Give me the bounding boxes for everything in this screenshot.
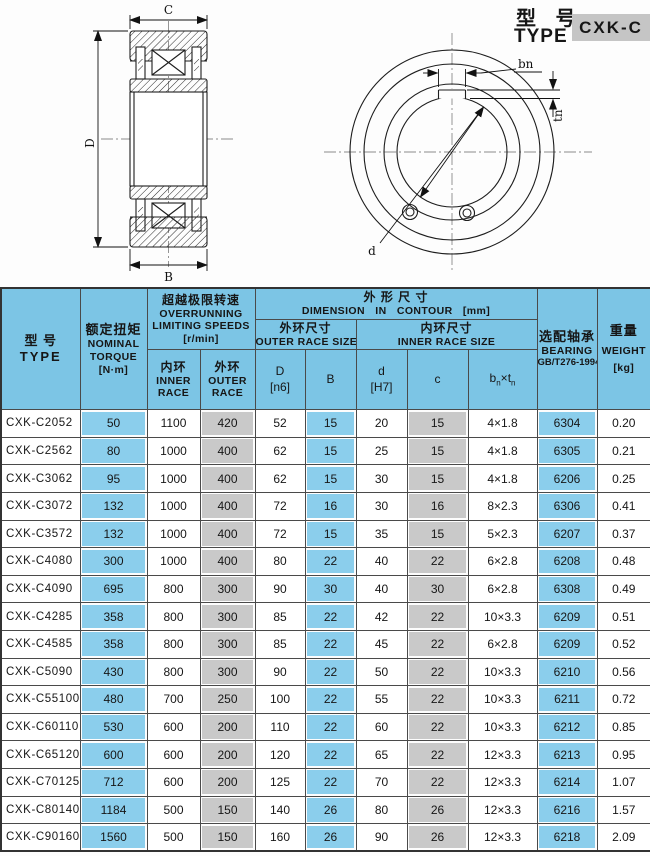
cell-bt: 10×3.3 <box>468 713 537 741</box>
cell-c: 15 <box>407 465 468 493</box>
cell-outer: 200 <box>200 713 255 741</box>
cell-bearing: 6216 <box>537 796 597 824</box>
cell-bt: 10×3.3 <box>468 686 537 714</box>
dimension-label-d: d <box>368 244 376 258</box>
cell-weight: 0.49 <box>597 575 650 603</box>
cell-outer: 300 <box>200 575 255 603</box>
col-header-type: 型 号 TYPE <box>1 288 80 410</box>
cell-B: 22 <box>305 686 356 714</box>
cell-c: 15 <box>407 410 468 438</box>
cell-D: 120 <box>255 741 305 769</box>
cell-outer: 250 <box>200 686 255 714</box>
cell-weight: 0.41 <box>597 492 650 520</box>
cell-bt: 4×1.8 <box>468 465 537 493</box>
cell-D: 72 <box>255 520 305 548</box>
cell-torque: 80 <box>80 437 147 465</box>
cell-outer: 200 <box>200 741 255 769</box>
dimension-tn: tn <box>467 71 565 122</box>
cell-inner: 800 <box>147 575 200 603</box>
cell-outer: 400 <box>200 465 255 493</box>
col-header-inner-race: 内环 INNER RACE <box>147 350 200 410</box>
cell-bearing: 6209 <box>537 630 597 658</box>
cell-bearing: 6218 <box>537 824 597 852</box>
cell-B: 22 <box>305 548 356 576</box>
table-row: CXK-C35721321000400721535155×2.362070.37 <box>1 520 650 548</box>
cell-d: 35 <box>356 520 407 548</box>
cell-d: 40 <box>356 575 407 603</box>
cell-outer: 300 <box>200 630 255 658</box>
cell-inner: 700 <box>147 686 200 714</box>
cell-D: 52 <box>255 410 305 438</box>
cell-D: 90 <box>255 658 305 686</box>
dimension-label-C: C <box>164 3 173 17</box>
cell-type: CXK-C2052 <box>1 410 80 438</box>
cell-inner: 1000 <box>147 465 200 493</box>
cell-type: CXK-C3062 <box>1 465 80 493</box>
type-badge: CXK-C <box>572 14 650 41</box>
cell-inner: 1000 <box>147 492 200 520</box>
front-view-drawing: bn tn d <box>320 27 620 277</box>
cell-d: 70 <box>356 768 407 796</box>
cell-type: CXK-C60110 <box>1 713 80 741</box>
cell-B: 26 <box>305 796 356 824</box>
page-title-en: TYPE <box>514 26 568 48</box>
table-row: CXK-C7012571260020012522702212×3.362141.… <box>1 768 650 796</box>
cell-c: 22 <box>407 713 468 741</box>
table-row: CXK-C6512060060020012022652212×3.362130.… <box>1 741 650 769</box>
cell-torque: 712 <box>80 768 147 796</box>
cell-c: 15 <box>407 437 468 465</box>
cell-weight: 0.95 <box>597 741 650 769</box>
cell-D: 125 <box>255 768 305 796</box>
table-row: CXK-C4090695800300903040306×2.863080.49 <box>1 575 650 603</box>
cell-torque: 695 <box>80 575 147 603</box>
table-row: CXK-C4585358800300852245226×2.862090.52 <box>1 630 650 658</box>
cell-c: 15 <box>407 520 468 548</box>
col-header-weight: 重量 WEIGHT [kg] <box>597 288 650 410</box>
cell-B: 22 <box>305 658 356 686</box>
cell-bearing: 6211 <box>537 686 597 714</box>
col-header-dimension: 外 形 尺 寸 DIMENSION IN CONTOUR [mm] <box>255 288 537 319</box>
cell-inner: 800 <box>147 630 200 658</box>
col-header-c: c <box>407 350 468 410</box>
cell-inner: 500 <box>147 796 200 824</box>
cell-torque: 1560 <box>80 824 147 852</box>
cell-c: 26 <box>407 824 468 852</box>
cell-bt: 10×3.3 <box>468 658 537 686</box>
cell-B: 16 <box>305 492 356 520</box>
cell-d: 65 <box>356 741 407 769</box>
cell-d: 42 <box>356 603 407 631</box>
col-header-inner-race-size: 内环尺寸 INNER RACE SIZE <box>356 319 537 350</box>
cell-weight: 0.56 <box>597 658 650 686</box>
cell-weight: 2.09 <box>597 824 650 852</box>
table-row: CXK-C90160156050015016026902612×3.362182… <box>1 824 650 852</box>
cell-bt: 6×2.8 <box>468 630 537 658</box>
cell-B: 22 <box>305 741 356 769</box>
cell-bearing: 6207 <box>537 520 597 548</box>
cell-B: 22 <box>305 603 356 631</box>
technical-drawing-area: C D B <box>0 0 650 287</box>
dimension-d: d <box>368 107 483 258</box>
cell-inner: 600 <box>147 768 200 796</box>
cell-c: 22 <box>407 686 468 714</box>
cell-inner: 600 <box>147 713 200 741</box>
cell-outer: 400 <box>200 437 255 465</box>
cell-D: 72 <box>255 492 305 520</box>
cell-bt: 6×2.8 <box>468 548 537 576</box>
cell-d: 20 <box>356 410 407 438</box>
cell-outer: 300 <box>200 658 255 686</box>
cell-bt: 4×1.8 <box>468 410 537 438</box>
cell-D: 85 <box>255 630 305 658</box>
cell-weight: 0.20 <box>597 410 650 438</box>
cell-torque: 430 <box>80 658 147 686</box>
table-row: CXK-C80140118450015014026802612×3.362161… <box>1 796 650 824</box>
col-header-outer-race: 外环 OUTER RACE <box>200 350 255 410</box>
cell-torque: 132 <box>80 492 147 520</box>
cell-weight: 0.48 <box>597 548 650 576</box>
cell-bearing: 6306 <box>537 492 597 520</box>
cell-D: 110 <box>255 713 305 741</box>
cell-c: 22 <box>407 658 468 686</box>
table-body: CXK-C2052501100420521520154×1.863040.20C… <box>1 410 650 852</box>
cell-c: 22 <box>407 741 468 769</box>
cell-torque: 300 <box>80 548 147 576</box>
cell-outer: 150 <box>200 796 255 824</box>
cell-type: CXK-C4585 <box>1 630 80 658</box>
cell-torque: 530 <box>80 713 147 741</box>
cell-bearing: 6213 <box>537 741 597 769</box>
bearing-section <box>130 31 207 247</box>
cell-weight: 1.07 <box>597 768 650 796</box>
cell-outer: 400 <box>200 520 255 548</box>
col-header-overrunning: 超越极限转速 OVERRUNNING LIMITING SPEEDS [r/mi… <box>147 288 255 350</box>
cell-c: 26 <box>407 796 468 824</box>
cell-torque: 358 <box>80 603 147 631</box>
cell-D: 140 <box>255 796 305 824</box>
cell-type: CXK-C70125 <box>1 768 80 796</box>
cell-d: 30 <box>356 492 407 520</box>
cell-torque: 95 <box>80 465 147 493</box>
cell-inner: 1000 <box>147 520 200 548</box>
cell-B: 15 <box>305 520 356 548</box>
cell-D: 80 <box>255 548 305 576</box>
cell-outer: 400 <box>200 492 255 520</box>
cell-B: 15 <box>305 465 356 493</box>
cell-torque: 1184 <box>80 796 147 824</box>
cell-bearing: 6304 <box>537 410 597 438</box>
cell-outer: 400 <box>200 548 255 576</box>
cell-B: 22 <box>305 768 356 796</box>
dimension-label-D: D <box>85 138 97 148</box>
col-header-bt: bn×tn <box>468 350 537 410</box>
cell-type: CXK-C2562 <box>1 437 80 465</box>
cell-bearing: 6208 <box>537 548 597 576</box>
dimension-label-B: B <box>164 270 173 284</box>
cell-bt: 6×2.8 <box>468 575 537 603</box>
table-row: CXK-C6011053060020011022602210×3.362120.… <box>1 713 650 741</box>
cell-d: 25 <box>356 437 407 465</box>
table-row: CXK-C2562801000400621525154×1.863050.21 <box>1 437 650 465</box>
cell-B: 30 <box>305 575 356 603</box>
section-view-drawing: C D B <box>85 3 235 285</box>
cell-bearing: 6308 <box>537 575 597 603</box>
cell-bt: 12×3.3 <box>468 768 537 796</box>
cell-d: 40 <box>356 548 407 576</box>
table-row: CXK-C3062951000400621530154×1.862060.25 <box>1 465 650 493</box>
cell-torque: 50 <box>80 410 147 438</box>
cell-weight: 0.21 <box>597 437 650 465</box>
cell-c: 16 <box>407 492 468 520</box>
cell-inner: 800 <box>147 603 200 631</box>
cell-D: 85 <box>255 603 305 631</box>
cell-weight: 0.51 <box>597 603 650 631</box>
dimension-bn: bn <box>423 57 542 87</box>
cell-d: 90 <box>356 824 407 852</box>
table-row: CXK-C2052501100420521520154×1.863040.20 <box>1 410 650 438</box>
cell-weight: 0.25 <box>597 465 650 493</box>
cell-bt: 12×3.3 <box>468 741 537 769</box>
cell-B: 26 <box>305 824 356 852</box>
cell-D: 160 <box>255 824 305 852</box>
cell-type: CXK-C4080 <box>1 548 80 576</box>
cell-B: 22 <box>305 713 356 741</box>
cell-d: 45 <box>356 630 407 658</box>
cell-D: 90 <box>255 575 305 603</box>
cell-B: 15 <box>305 410 356 438</box>
col-header-bearing: 选配轴承 BEARING GB/T276-1994 <box>537 288 597 410</box>
cell-D: 62 <box>255 465 305 493</box>
col-header-D: D [n6] <box>255 350 305 410</box>
cell-bt: 4×1.8 <box>468 437 537 465</box>
cell-type: CXK-C3572 <box>1 520 80 548</box>
cell-torque: 132 <box>80 520 147 548</box>
table-row: CXK-C5510048070025010022552210×3.362110.… <box>1 686 650 714</box>
cell-bearing: 6305 <box>537 437 597 465</box>
cell-inner: 600 <box>147 741 200 769</box>
cell-d: 80 <box>356 796 407 824</box>
cell-bt: 12×3.3 <box>468 796 537 824</box>
cell-bearing: 6212 <box>537 713 597 741</box>
cell-weight: 0.72 <box>597 686 650 714</box>
table-row: CXK-C40803001000400802240226×2.862080.48 <box>1 548 650 576</box>
cell-c: 30 <box>407 575 468 603</box>
col-header-torque: 额定扭矩 NOMINAL TORQUE [N·m] <box>80 288 147 410</box>
cell-bt: 10×3.3 <box>468 603 537 631</box>
cell-d: 55 <box>356 686 407 714</box>
cell-bt: 5×2.3 <box>468 520 537 548</box>
cell-D: 100 <box>255 686 305 714</box>
catalog-page: C D B <box>0 0 650 856</box>
table-row: CXK-C42853588003008522422210×3.362090.51 <box>1 603 650 631</box>
col-header-B: B <box>305 350 356 410</box>
cell-torque: 480 <box>80 686 147 714</box>
col-header-outer-race-size: 外环尺寸 OUTER RACE SIZE <box>255 319 356 350</box>
cell-inner: 800 <box>147 658 200 686</box>
cell-bearing: 6210 <box>537 658 597 686</box>
cell-d: 30 <box>356 465 407 493</box>
cell-weight: 0.37 <box>597 520 650 548</box>
cell-inner: 1100 <box>147 410 200 438</box>
cell-bt: 12×3.3 <box>468 824 537 852</box>
table-row: CXK-C50904308003009022502210×3.362100.56 <box>1 658 650 686</box>
col-header-d: d [H7] <box>356 350 407 410</box>
cell-weight: 0.85 <box>597 713 650 741</box>
cell-c: 22 <box>407 548 468 576</box>
cell-torque: 600 <box>80 741 147 769</box>
cell-outer: 420 <box>200 410 255 438</box>
cell-d: 60 <box>356 713 407 741</box>
dimension-label-tn: tn <box>551 109 565 122</box>
rivet-hole <box>403 205 418 220</box>
cell-B: 22 <box>305 630 356 658</box>
cell-outer: 300 <box>200 603 255 631</box>
cell-type: CXK-C4285 <box>1 603 80 631</box>
cell-type: CXK-C65120 <box>1 741 80 769</box>
cell-type: CXK-C3072 <box>1 492 80 520</box>
cell-bearing: 6209 <box>537 603 597 631</box>
table-row: CXK-C30721321000400721630168×2.363060.41 <box>1 492 650 520</box>
cell-outer: 150 <box>200 824 255 852</box>
cell-type: CXK-C80140 <box>1 796 80 824</box>
cell-c: 22 <box>407 603 468 631</box>
cell-type: CXK-C55100 <box>1 686 80 714</box>
cell-bt: 8×2.3 <box>468 492 537 520</box>
cell-c: 22 <box>407 768 468 796</box>
cell-weight: 0.52 <box>597 630 650 658</box>
cell-c: 22 <box>407 630 468 658</box>
spec-table: 型 号 TYPE 额定扭矩 NOMINAL TORQUE [N·m] 超越极限转… <box>0 287 650 852</box>
cell-inner: 1000 <box>147 437 200 465</box>
cell-D: 62 <box>255 437 305 465</box>
cell-d: 50 <box>356 658 407 686</box>
cell-torque: 358 <box>80 630 147 658</box>
cell-type: CXK-C4090 <box>1 575 80 603</box>
cell-weight: 1.57 <box>597 796 650 824</box>
cell-outer: 200 <box>200 768 255 796</box>
cell-inner: 500 <box>147 824 200 852</box>
cell-bearing: 6206 <box>537 465 597 493</box>
cell-inner: 1000 <box>147 548 200 576</box>
cell-bearing: 6214 <box>537 768 597 796</box>
cell-type: CXK-C5090 <box>1 658 80 686</box>
dimension-label-bn: bn <box>518 57 534 71</box>
cell-B: 15 <box>305 437 356 465</box>
cell-type: CXK-C90160 <box>1 824 80 852</box>
